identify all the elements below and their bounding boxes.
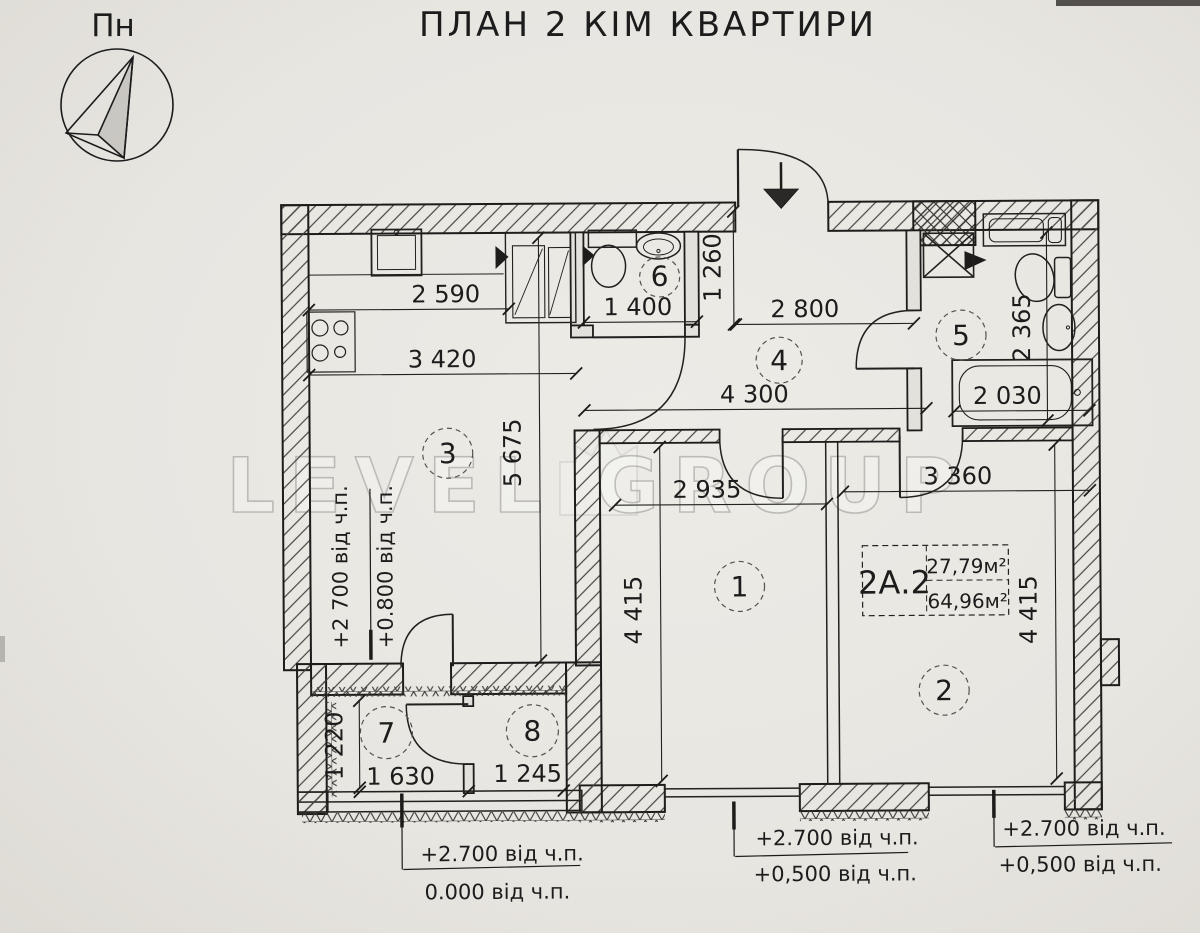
marker-icon bbox=[495, 246, 508, 269]
apartment-tag: 2А.2 27,79м² 64,96м² bbox=[858, 545, 1009, 616]
dim-2030: 2 030 bbox=[973, 382, 1042, 410]
insulation-band bbox=[311, 686, 566, 698]
wall-bottom-pier-2 bbox=[800, 783, 929, 811]
wall-left bbox=[281, 205, 311, 670]
wc-toilet bbox=[588, 230, 636, 287]
dim-3420: 3 420 bbox=[408, 345, 477, 373]
north-compass: Пн bbox=[61, 8, 173, 161]
apartment-living-area: 27,79м² bbox=[926, 554, 1007, 578]
room-number-2: 2 bbox=[935, 674, 953, 707]
floor-plan-svg: ПЛАН 2 КІМ КВАРТИРИ Пн LEVEL GROUP bbox=[0, 0, 1200, 933]
bathroom-door bbox=[856, 310, 914, 368]
compass-needle-shade bbox=[98, 57, 133, 158]
elevation-bottom-left-top: +2.700 від ч.п. bbox=[420, 841, 583, 866]
elevation-bottom-right-bottom: +0,500 від ч.п. bbox=[999, 852, 1162, 877]
insulation-band bbox=[580, 812, 665, 823]
kitchen-sink bbox=[371, 229, 421, 275]
wall-bath-room2 bbox=[963, 427, 1073, 441]
marker-icon bbox=[964, 251, 986, 270]
dim-2365: 2 365 bbox=[1008, 293, 1036, 362]
room-number-7: 7 bbox=[377, 717, 395, 750]
wall-top-left bbox=[281, 202, 735, 234]
dim-1245: 1 245 bbox=[493, 760, 562, 788]
wall-hall-room1-b bbox=[783, 428, 900, 442]
wall-wc-bottom-a bbox=[571, 325, 593, 337]
room-number-6: 6 bbox=[651, 260, 669, 293]
scanned-floor-plan-page: ПЛАН 2 КІМ КВАРТИРИ Пн LEVEL GROUP bbox=[0, 0, 1200, 933]
elevation-bottom-mid-bottom: +0,500 від ч.п. bbox=[754, 861, 917, 886]
wardrobe-closet bbox=[505, 232, 576, 322]
wc-sink bbox=[636, 233, 680, 259]
wc-kitchen-door bbox=[593, 337, 686, 430]
dim-2935: 2 935 bbox=[672, 475, 741, 503]
wall-right bbox=[1071, 200, 1102, 809]
elevation-bottom-right-top: +2.700 від ч.п. bbox=[1002, 816, 1165, 841]
kitchen-stove bbox=[307, 312, 355, 372]
insulation-band bbox=[302, 811, 582, 823]
wall-kitchen-room1 bbox=[575, 430, 601, 665]
dim-1630: 1 630 bbox=[366, 762, 435, 790]
scan-artifact bbox=[0, 636, 5, 662]
marker-icon bbox=[582, 245, 594, 266]
balcony-lower-door bbox=[406, 704, 468, 764]
elevation-left-outer: +2 700 від ч.п. bbox=[328, 485, 353, 648]
dim-4415-right: 4 415 bbox=[1014, 575, 1042, 644]
page-title: ПЛАН 2 КІМ КВАРТИРИ bbox=[419, 5, 877, 45]
apartment-code: 2А.2 bbox=[858, 563, 931, 601]
elevation-bottom-mid-top: +2.700 від ч.п. bbox=[755, 825, 918, 850]
kitchen-counter-line bbox=[309, 274, 504, 275]
apartment-total-area: 64,96м² bbox=[927, 589, 1008, 613]
scan-artifact bbox=[1056, 0, 1200, 6]
window-room2 bbox=[929, 782, 1065, 803]
dim-1260: 1 260 bbox=[698, 233, 726, 302]
wall-bottom-pier-3 bbox=[1065, 782, 1102, 809]
room-number-8: 8 bbox=[523, 715, 541, 748]
room-number-1: 1 bbox=[731, 570, 749, 603]
dim-3360: 3 360 bbox=[923, 462, 992, 490]
wall-closet-wc bbox=[570, 232, 584, 325]
room-number-5: 5 bbox=[952, 319, 970, 352]
balcony-glazing bbox=[298, 790, 582, 812]
north-label: Пн bbox=[91, 8, 135, 44]
wall-hall-bath-lower bbox=[907, 368, 921, 430]
wall-hall-room1-a bbox=[600, 430, 720, 444]
entrance-arrow-icon bbox=[764, 162, 798, 208]
elevation-bottom-left-bottom: 0.000 від ч.п. bbox=[424, 879, 570, 904]
balcony-upper-door bbox=[401, 614, 453, 666]
room-number-4: 4 bbox=[770, 344, 788, 377]
wall-right-stub bbox=[1101, 639, 1119, 685]
dim-2800: 2 800 bbox=[770, 295, 839, 323]
dim-4300: 4 300 bbox=[720, 380, 789, 408]
room-number-3: 3 bbox=[439, 437, 457, 470]
dim-1220: 1 220 bbox=[320, 711, 348, 780]
dim-2590: 2 590 bbox=[411, 280, 480, 308]
wall-wc-right bbox=[684, 232, 699, 325]
bath-sink bbox=[1043, 304, 1075, 350]
dim-5675: 5 675 bbox=[498, 418, 526, 487]
insulation-band bbox=[800, 810, 929, 821]
dim-4415-left: 4 415 bbox=[619, 576, 647, 645]
wall-hall-bath-upper bbox=[906, 230, 920, 310]
elevation-left-inner: +0.800 від ч.п. bbox=[373, 485, 398, 648]
